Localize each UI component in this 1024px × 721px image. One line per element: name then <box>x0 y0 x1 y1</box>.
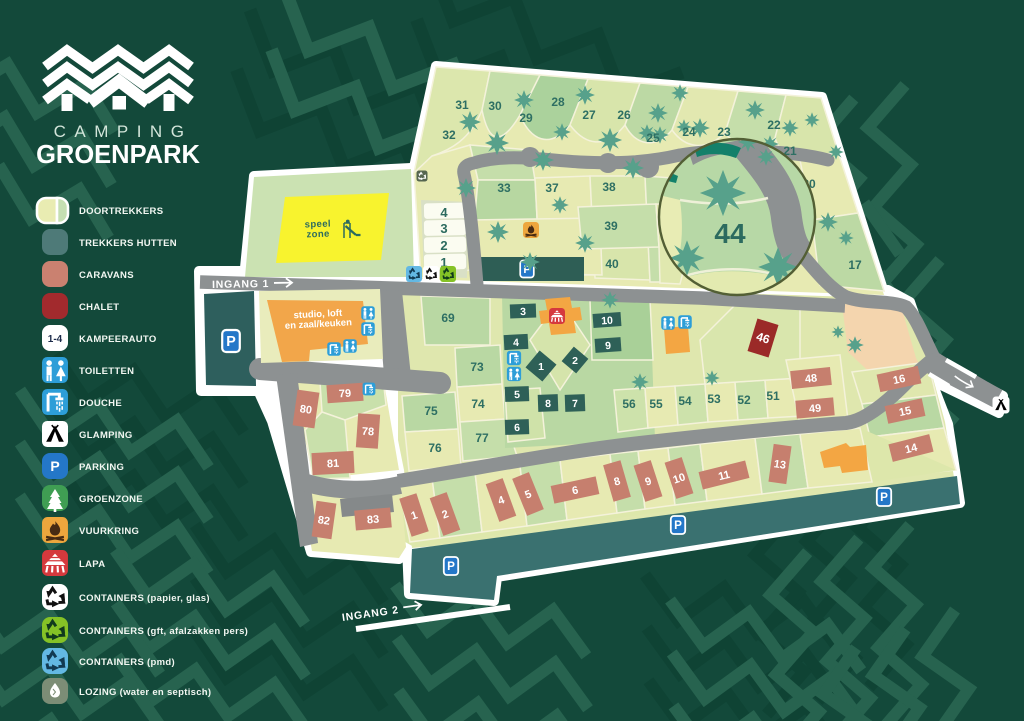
svg-text:24: 24 <box>682 125 696 139</box>
svg-text:GROENZONE: GROENZONE <box>79 494 143 505</box>
svg-text:54: 54 <box>678 394 692 408</box>
svg-text:28: 28 <box>551 95 565 109</box>
svg-text:51: 51 <box>766 389 780 403</box>
svg-text:15: 15 <box>898 405 912 419</box>
svg-text:33: 33 <box>497 181 511 195</box>
svg-text:P: P <box>50 458 59 474</box>
svg-text:81: 81 <box>327 458 340 471</box>
svg-text:10: 10 <box>601 315 614 328</box>
svg-text:CHALET: CHALET <box>79 302 119 313</box>
svg-text:74: 74 <box>471 397 485 411</box>
svg-text:83: 83 <box>366 513 379 526</box>
svg-text:48: 48 <box>804 372 817 385</box>
svg-text:DOORTREKKERS: DOORTREKKERS <box>79 206 163 217</box>
svg-text:TOILETTEN: TOILETTEN <box>79 366 134 377</box>
svg-text:77: 77 <box>475 431 489 445</box>
svg-text:49: 49 <box>808 402 821 415</box>
svg-text:3: 3 <box>520 306 526 318</box>
svg-text:23: 23 <box>717 125 731 139</box>
svg-text:16: 16 <box>892 373 906 387</box>
svg-text:22: 22 <box>767 118 781 132</box>
svg-text:52: 52 <box>737 393 751 407</box>
svg-text:25: 25 <box>646 131 660 145</box>
svg-text:2: 2 <box>572 355 578 367</box>
svg-text:TREKKERS HUTTEN: TREKKERS HUTTEN <box>79 238 177 249</box>
svg-text:GROENPARK: GROENPARK <box>36 141 200 169</box>
svg-text:39: 39 <box>604 219 618 233</box>
svg-text:31: 31 <box>455 98 469 112</box>
svg-text:zone: zone <box>306 229 330 241</box>
svg-text:CAMPING: CAMPING <box>54 122 193 141</box>
svg-text:29: 29 <box>519 111 533 125</box>
svg-text:78: 78 <box>361 426 374 439</box>
svg-text:KAMPEERAUTO: KAMPEERAUTO <box>79 334 157 345</box>
svg-text:32: 32 <box>442 128 456 142</box>
svg-text:CONTAINERS (gft, afalzakken pe: CONTAINERS (gft, afalzakken pers) <box>79 626 248 637</box>
svg-text:8: 8 <box>545 398 551 410</box>
svg-text:26: 26 <box>617 108 631 122</box>
svg-text:9: 9 <box>605 340 612 352</box>
svg-text:30: 30 <box>488 99 502 113</box>
svg-text:80: 80 <box>299 403 313 417</box>
svg-text:40: 40 <box>605 257 619 271</box>
svg-text:PARKING: PARKING <box>79 462 124 473</box>
svg-text:7: 7 <box>572 398 578 410</box>
svg-text:13: 13 <box>773 458 787 472</box>
svg-text:53: 53 <box>707 392 721 406</box>
svg-text:CONTAINERS (papier, glas): CONTAINERS (papier, glas) <box>79 593 210 604</box>
svg-text:82: 82 <box>317 514 331 528</box>
svg-text:56: 56 <box>622 397 636 411</box>
svg-text:DOUCHE: DOUCHE <box>79 398 122 409</box>
svg-text:CONTAINERS (pmd): CONTAINERS (pmd) <box>79 657 175 668</box>
svg-text:LAPA: LAPA <box>79 559 105 570</box>
svg-text:1: 1 <box>538 361 544 373</box>
svg-text:1-4: 1-4 <box>48 334 63 345</box>
svg-text:79: 79 <box>339 388 352 401</box>
svg-text:17: 17 <box>848 258 862 272</box>
svg-text:3: 3 <box>440 221 447 236</box>
svg-text:69: 69 <box>441 311 455 325</box>
svg-text:27: 27 <box>582 108 596 122</box>
svg-text:6: 6 <box>514 422 520 434</box>
svg-text:37: 37 <box>545 181 559 195</box>
svg-text:73: 73 <box>470 360 484 374</box>
svg-text:75: 75 <box>424 404 438 418</box>
svg-text:4: 4 <box>440 205 448 220</box>
svg-text:76: 76 <box>428 441 442 455</box>
svg-text:38: 38 <box>602 180 616 194</box>
svg-text:4: 4 <box>513 337 520 349</box>
svg-text:55: 55 <box>649 397 663 411</box>
svg-text:GLAMPING: GLAMPING <box>79 430 133 441</box>
svg-text:5: 5 <box>514 389 520 401</box>
svg-text:INGANG 1: INGANG 1 <box>212 278 269 291</box>
svg-text:LOZING (water en septisch): LOZING (water en septisch) <box>79 687 211 698</box>
svg-text:CARAVANS: CARAVANS <box>79 270 134 281</box>
svg-text:VUURKRING: VUURKRING <box>79 526 139 537</box>
svg-text:2: 2 <box>440 238 447 253</box>
svg-text:44: 44 <box>714 218 746 249</box>
